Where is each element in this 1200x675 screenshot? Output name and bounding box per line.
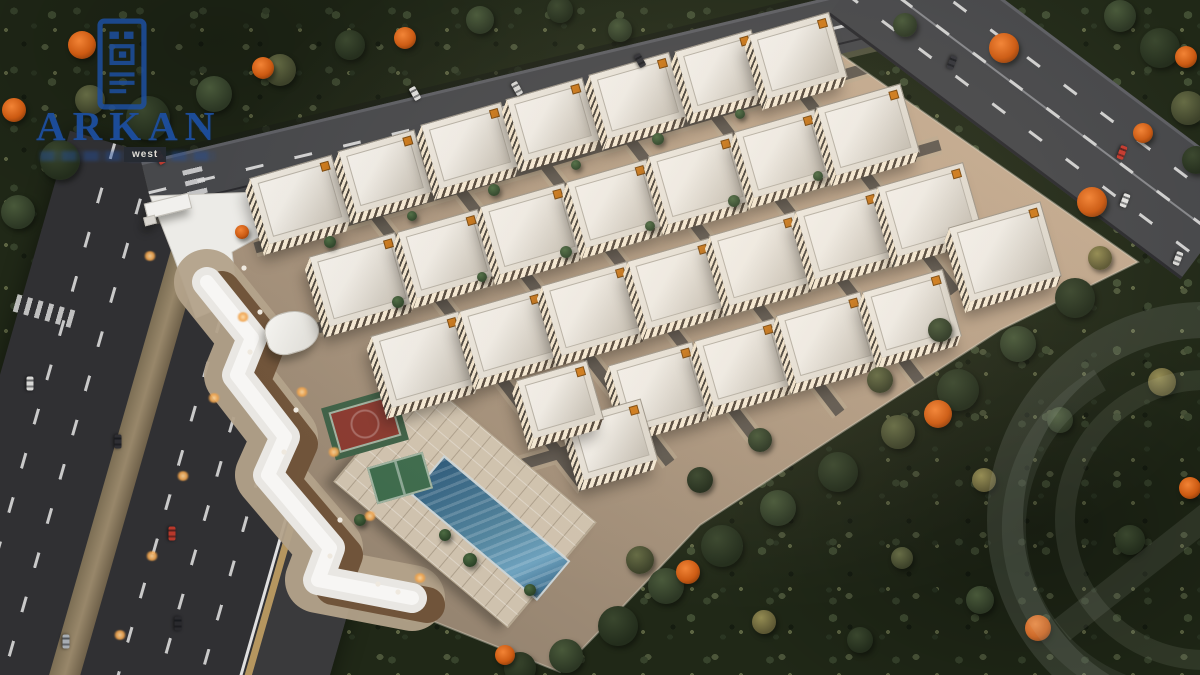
logo-tagline: west xyxy=(40,148,216,165)
arkan-logo: ARKAN west xyxy=(30,10,260,185)
brand-text: ARKAN xyxy=(36,102,256,150)
west-chip: west xyxy=(124,147,166,162)
aerial-compound-render: ARKAN west xyxy=(0,0,1200,675)
kufic-monogram-icon xyxy=(96,18,148,110)
